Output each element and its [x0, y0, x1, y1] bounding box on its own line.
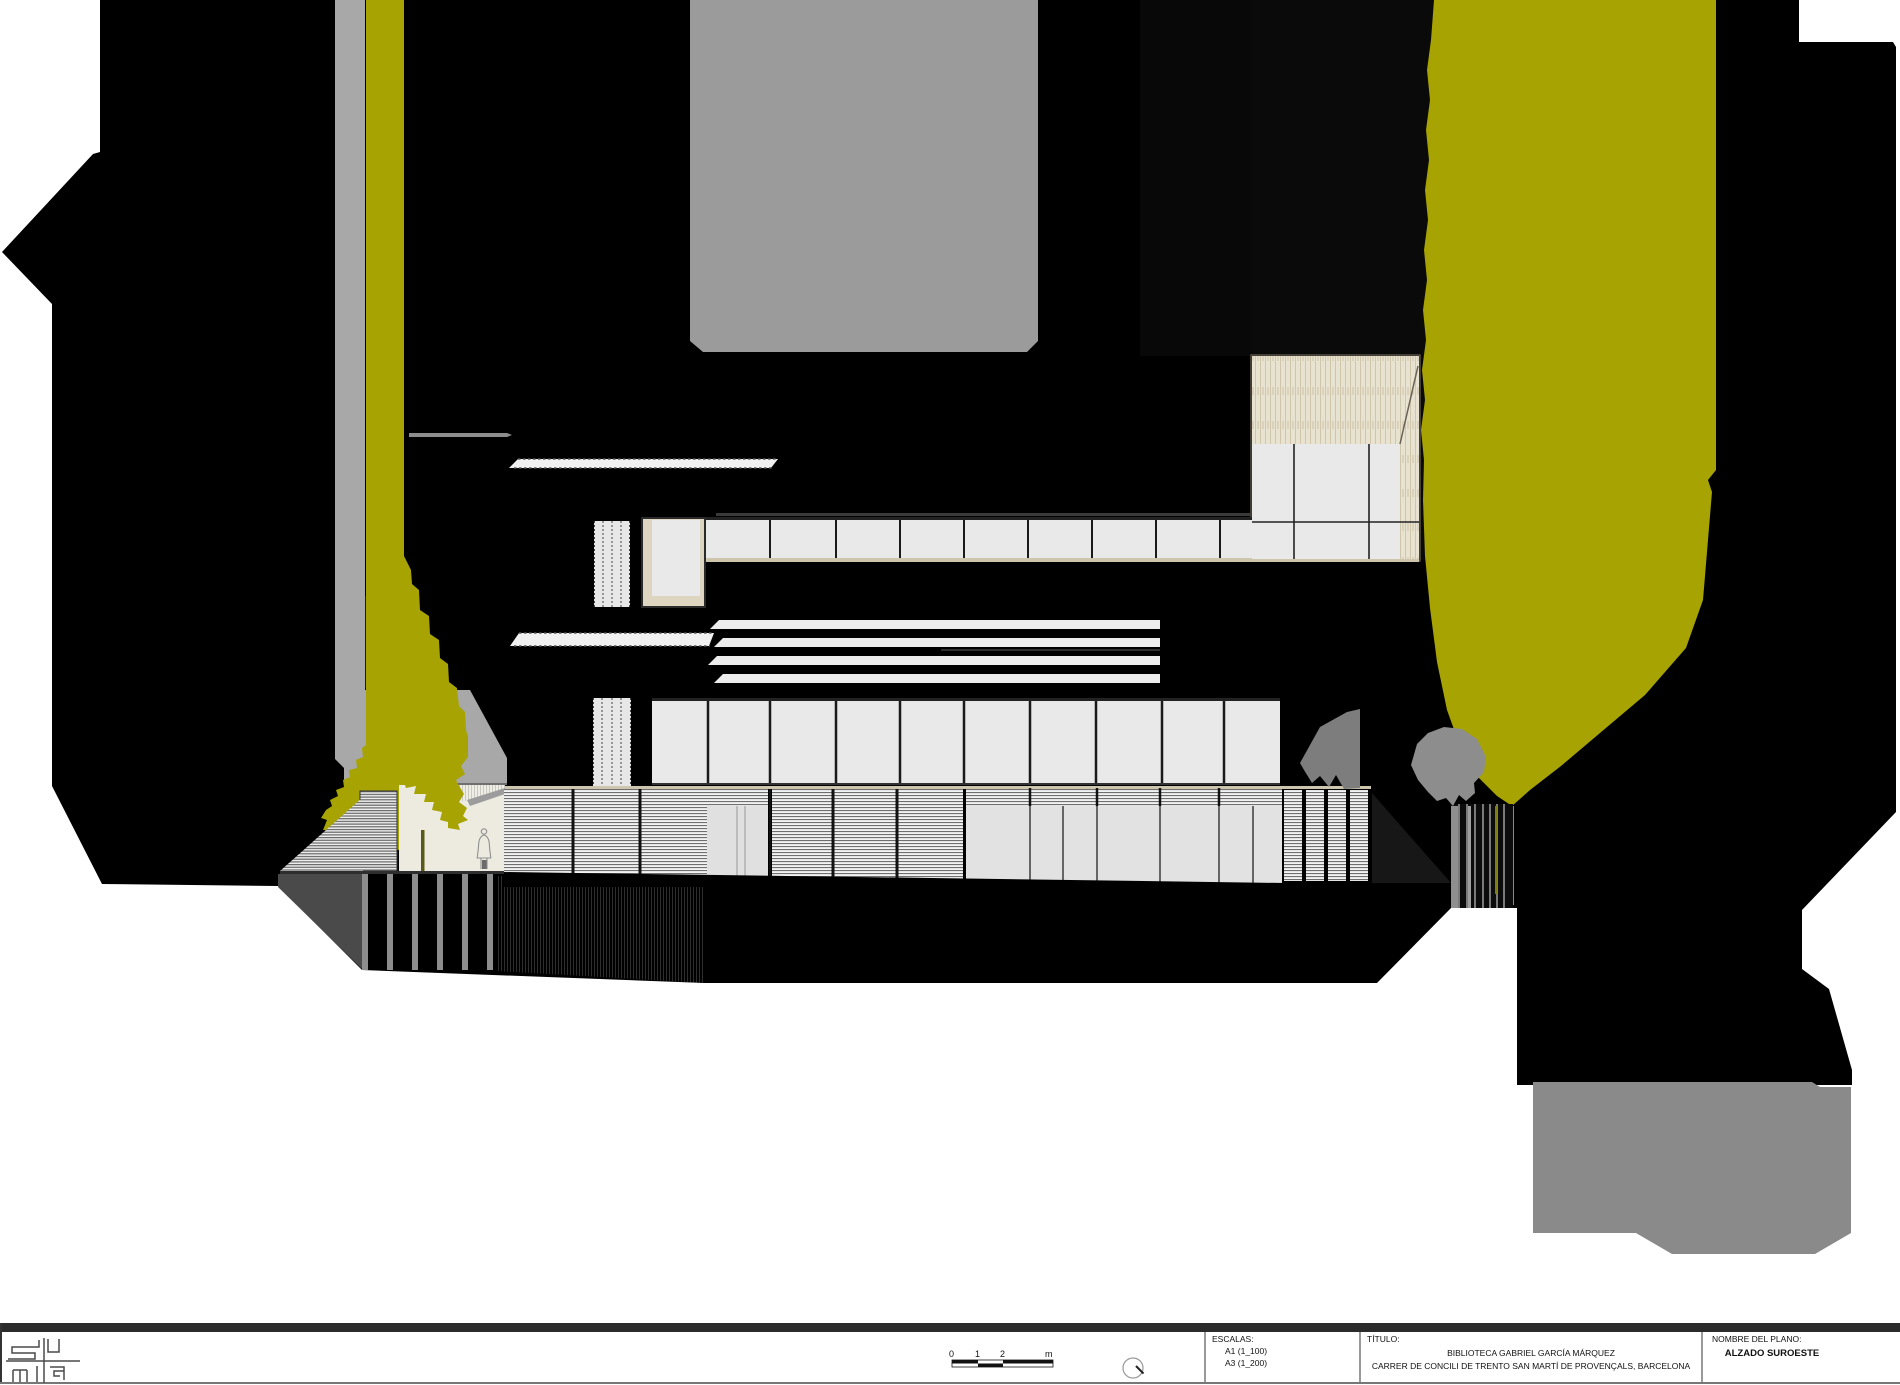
svg-text:TÍTULO:: TÍTULO:: [1367, 1334, 1400, 1344]
svg-text:A1 (1_100): A1 (1_100): [1225, 1346, 1267, 1356]
svg-text:1: 1: [975, 1349, 980, 1359]
svg-text:ALZADO SUROESTE: ALZADO SUROESTE: [1725, 1348, 1819, 1359]
svg-text:ESCALAS:: ESCALAS:: [1212, 1334, 1254, 1344]
svg-text:0: 0: [949, 1349, 954, 1359]
svg-text:BIBLIOTECA GABRIEL GARCÍA MÁRQ: BIBLIOTECA GABRIEL GARCÍA MÁRQUEZ: [1447, 1348, 1615, 1358]
svg-text:2: 2: [1000, 1349, 1005, 1359]
svg-text:NOMBRE DEL PLANO:: NOMBRE DEL PLANO:: [1712, 1334, 1801, 1344]
svg-text:A3 (1_200): A3 (1_200): [1225, 1358, 1267, 1368]
svg-text:m: m: [1045, 1349, 1053, 1359]
svg-text:CARRER DE CONCILI DE TRENTO SA: CARRER DE CONCILI DE TRENTO SAN MARTÍ DE…: [1372, 1361, 1691, 1371]
